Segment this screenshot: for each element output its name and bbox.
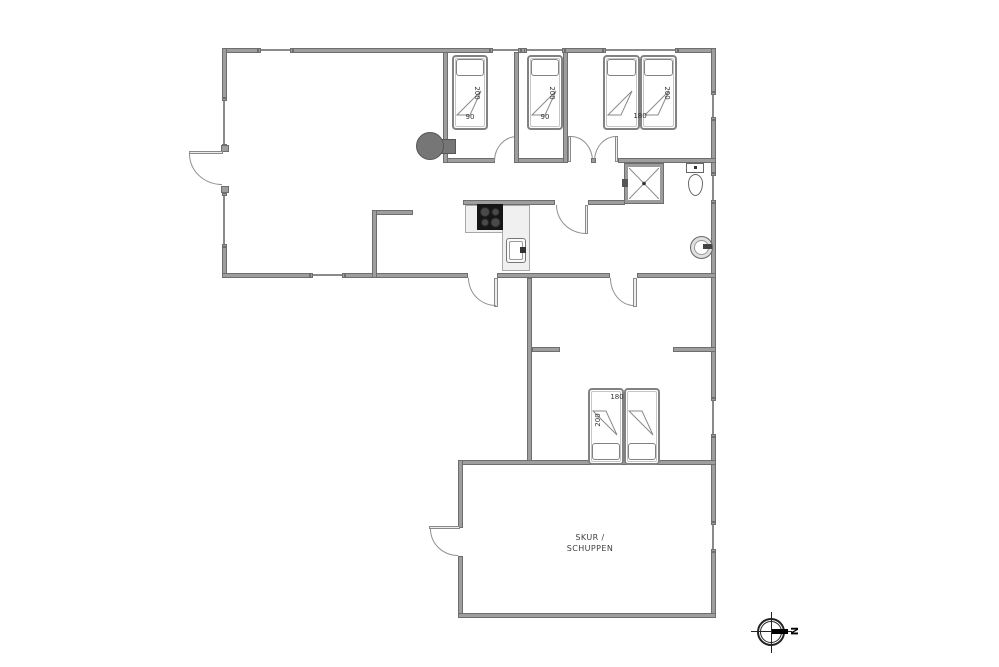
door-swing-arc — [556, 205, 586, 234]
window — [222, 193, 227, 247]
wall-segment — [637, 273, 716, 278]
wall-segment — [711, 437, 716, 522]
door-swing-arc — [610, 278, 634, 306]
door-swing-arc — [430, 529, 458, 556]
wall-segment — [711, 203, 716, 398]
window — [603, 48, 678, 53]
wall-segment — [293, 48, 490, 53]
window — [711, 398, 716, 437]
wall-segment — [458, 556, 463, 618]
bed-width-label: 180 — [605, 393, 629, 401]
cooktop — [477, 204, 503, 230]
washbasin-tap — [703, 244, 712, 249]
window — [711, 522, 716, 552]
bed-pillow — [531, 59, 559, 76]
shower-tray — [629, 168, 659, 199]
window — [711, 92, 716, 120]
bed-pillow — [456, 59, 484, 76]
door-swing-arc — [468, 278, 496, 306]
wall-segment — [563, 52, 568, 163]
wall-segment — [372, 210, 413, 215]
wall-segment — [458, 460, 716, 465]
toilet-button — [694, 166, 697, 169]
door-swing-arc — [189, 154, 222, 185]
wall-segment — [711, 48, 716, 92]
door-jamb — [221, 186, 229, 193]
wall-segment — [565, 48, 603, 53]
window — [711, 173, 716, 203]
wall-segment — [222, 48, 258, 53]
window — [258, 48, 293, 53]
wall-segment — [497, 273, 610, 278]
wall-segment — [588, 200, 625, 205]
bed-width-label: 180 — [616, 112, 664, 120]
wall-segment — [527, 278, 532, 463]
window — [222, 98, 227, 147]
blanket-fold-icon — [628, 410, 654, 438]
wall-segment — [458, 460, 463, 528]
window — [524, 48, 565, 53]
wall-segment — [673, 347, 716, 352]
wall-segment — [458, 613, 716, 618]
bed-pillow — [607, 59, 636, 76]
bed-width-label: 90 — [537, 113, 553, 121]
door-swing-arc — [594, 136, 616, 161]
shed-label-line1: SKUR / — [528, 532, 652, 543]
door-swing-arc — [571, 136, 593, 161]
kitchen-faucet — [520, 247, 526, 253]
bed-length-label: 200 — [548, 85, 556, 101]
bed-length-label: 200 — [473, 85, 481, 101]
window — [310, 273, 345, 278]
bed-pillow — [592, 443, 620, 460]
wall-segment — [532, 347, 560, 352]
wall-segment — [443, 158, 495, 163]
compass-north-label: N — [789, 623, 797, 639]
shower-valve — [622, 179, 628, 187]
wall-segment — [514, 52, 519, 163]
bed-pillow — [628, 443, 656, 460]
wall-segment — [372, 210, 377, 278]
wood-stove — [416, 132, 444, 160]
floor-plan: 200 90 200 90 200 180 180 200 — [0, 0, 999, 667]
wall-segment — [222, 48, 227, 98]
wall-segment — [711, 120, 716, 173]
shed-label-line2: SCHUPPEN — [528, 543, 652, 554]
toilet-bowl — [688, 174, 703, 196]
bed-length-label: 200 — [663, 85, 671, 101]
wall-segment — [345, 273, 468, 278]
bed-length-label: 200 — [594, 412, 602, 428]
wall-segment — [518, 158, 568, 163]
shed-label: SKUR / SCHUPPEN — [528, 532, 652, 554]
bed-pillow — [644, 59, 673, 76]
bed-width-label: 90 — [462, 113, 478, 121]
compass-north-arrow — [772, 629, 788, 634]
wall-segment — [222, 273, 310, 278]
wall-segment — [711, 552, 716, 618]
